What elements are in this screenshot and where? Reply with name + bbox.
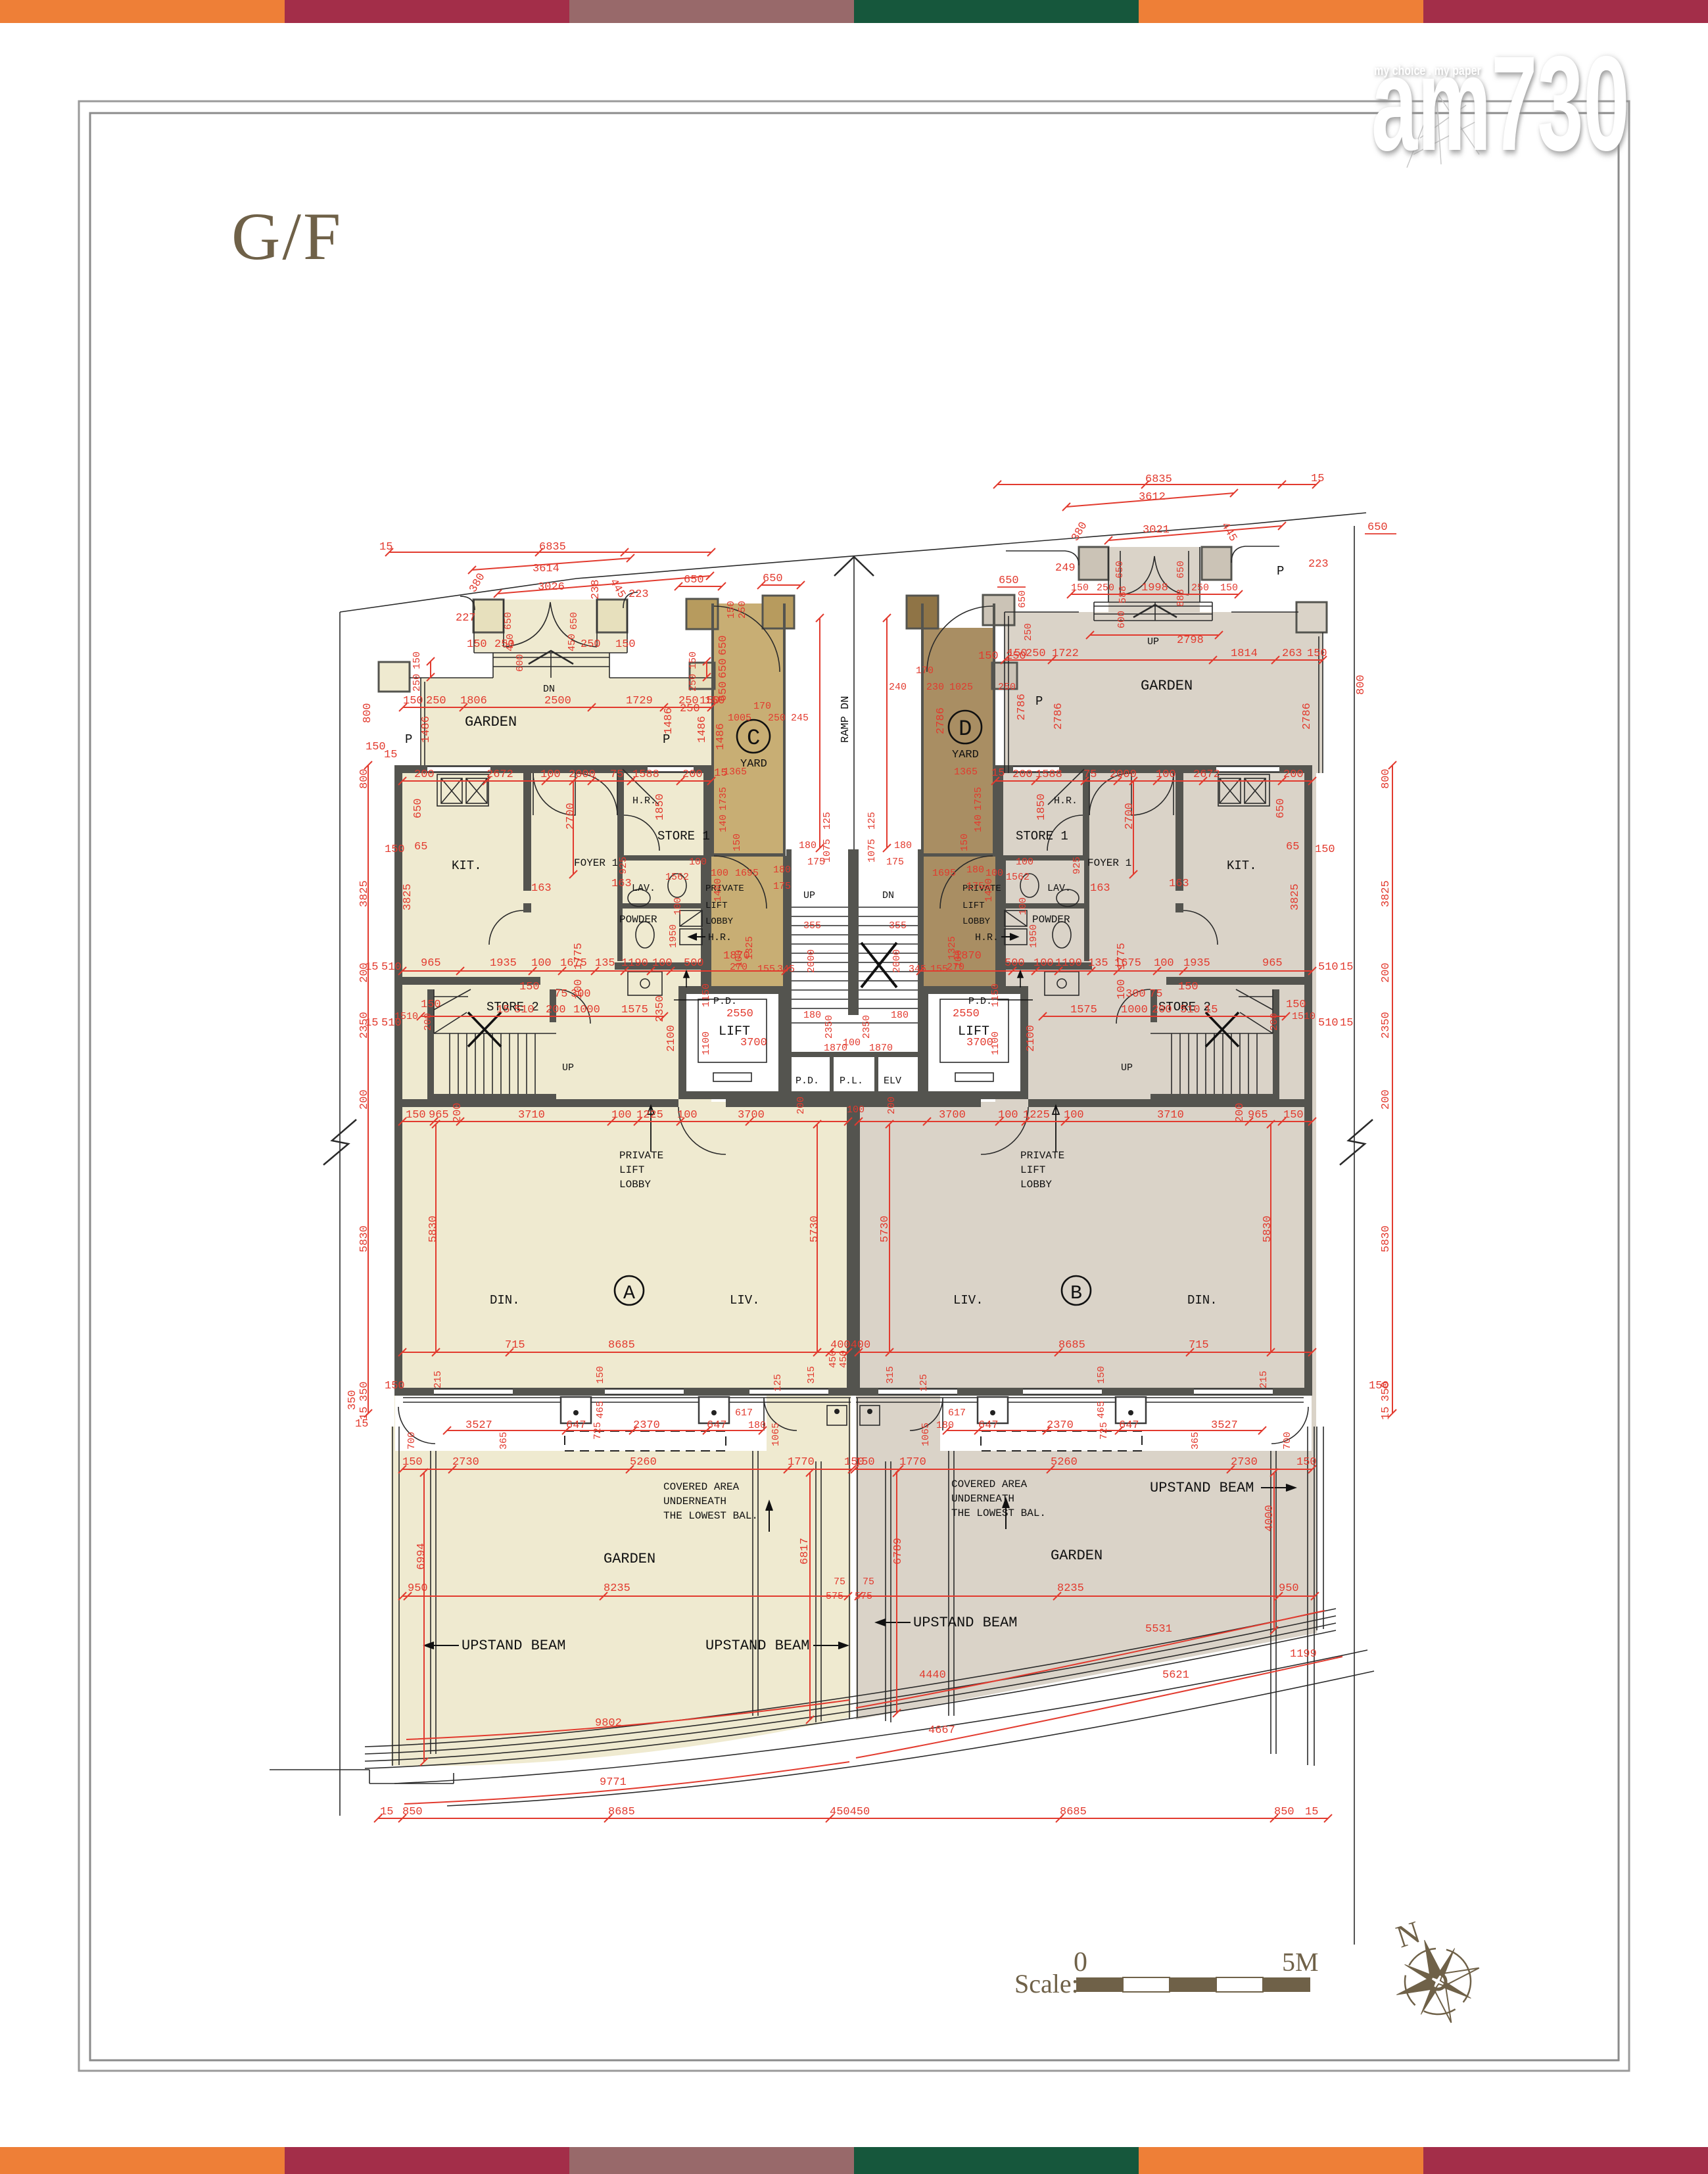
svg-text:800: 800: [1355, 674, 1367, 695]
svg-text:150: 150: [406, 1109, 426, 1122]
svg-text:LIFT: LIFT: [619, 1164, 644, 1176]
svg-text:UPSTAND BEAM: UPSTAND BEAM: [462, 1638, 565, 1654]
svg-text:1510: 1510: [394, 1011, 418, 1022]
svg-text:150: 150: [402, 1456, 423, 1469]
svg-text:715: 715: [505, 1339, 525, 1352]
svg-text:1065: 1065: [920, 1423, 932, 1446]
svg-text:100: 100: [689, 857, 707, 868]
svg-text:1400: 1400: [984, 878, 995, 902]
svg-text:155: 155: [930, 964, 948, 975]
svg-text:4440: 4440: [919, 1669, 946, 1682]
svg-text:450: 450: [838, 1350, 849, 1368]
svg-text:1365: 1365: [723, 767, 747, 778]
svg-text:150: 150: [519, 981, 540, 993]
svg-text:650: 650: [503, 612, 514, 630]
svg-text:1575: 1575: [1070, 1004, 1097, 1016]
svg-text:ELV: ELV: [884, 1075, 901, 1087]
svg-text:250: 250: [768, 713, 786, 724]
svg-text:200: 200: [358, 1089, 371, 1110]
svg-text:3700: 3700: [738, 1109, 765, 1122]
svg-text:15: 15: [384, 749, 397, 761]
svg-text:3825: 3825: [402, 884, 414, 910]
svg-text:1770: 1770: [899, 1456, 926, 1469]
svg-text:3527: 3527: [1211, 1419, 1238, 1432]
svg-text:200: 200: [682, 768, 703, 781]
svg-text:2350: 2350: [654, 995, 667, 1022]
svg-text:1850: 1850: [654, 793, 667, 820]
svg-text:5830: 5830: [358, 1225, 371, 1252]
svg-text:1588: 1588: [1035, 768, 1062, 781]
svg-text:P: P: [1277, 564, 1284, 579]
svg-text:200: 200: [1152, 1004, 1172, 1016]
svg-text:8685: 8685: [608, 1339, 635, 1352]
svg-text:965: 965: [429, 1109, 449, 1122]
svg-text:9771: 9771: [600, 1776, 627, 1789]
svg-text:510: 510: [1318, 961, 1339, 974]
svg-text:1000: 1000: [1121, 1004, 1148, 1016]
svg-text:650: 650: [684, 574, 704, 586]
svg-text:PRIVATE: PRIVATE: [705, 884, 744, 894]
svg-text:150: 150: [421, 999, 441, 1011]
svg-text:180: 180: [748, 1420, 766, 1431]
svg-text:100: 100: [1064, 1109, 1084, 1122]
svg-text:1225: 1225: [636, 1109, 663, 1122]
svg-text:am730: am730: [1371, 29, 1630, 179]
svg-text:250: 250: [426, 695, 446, 707]
svg-text:1486: 1486: [696, 716, 709, 743]
svg-text:600: 600: [515, 654, 526, 672]
svg-text:1325: 1325: [744, 936, 755, 960]
svg-text:6994: 6994: [415, 1543, 428, 1570]
svg-text:3825: 3825: [1380, 880, 1392, 907]
svg-text:355: 355: [889, 920, 907, 932]
svg-text:2100: 2100: [1025, 1025, 1037, 1052]
svg-text:2672: 2672: [1193, 768, 1220, 781]
svg-text:1025: 1025: [949, 682, 973, 693]
svg-text:1562: 1562: [1006, 872, 1030, 883]
svg-text:135: 135: [595, 957, 615, 970]
svg-text:150: 150: [403, 695, 423, 707]
svg-text:650: 650: [717, 635, 730, 655]
svg-text:650: 650: [999, 575, 1019, 587]
svg-text:650: 650: [1175, 561, 1187, 579]
svg-text:1729: 1729: [626, 695, 653, 707]
svg-text:100: 100: [611, 1109, 632, 1122]
svg-text:H.R.: H.R.: [1054, 795, 1078, 807]
svg-text:1562: 1562: [665, 872, 689, 883]
svg-text:180: 180: [936, 1420, 954, 1431]
svg-text:1588: 1588: [632, 768, 659, 781]
svg-text:150: 150: [412, 651, 423, 669]
svg-text:THE LOWEST BAL.: THE LOWEST BAL.: [663, 1510, 758, 1522]
svg-text:100: 100: [531, 957, 552, 970]
svg-text:650: 650: [412, 798, 425, 818]
svg-text:UP: UP: [1121, 1062, 1133, 1074]
svg-text:3825: 3825: [358, 880, 371, 907]
svg-text:1225: 1225: [1023, 1109, 1050, 1122]
svg-text:P.L.: P.L.: [840, 1075, 863, 1087]
svg-text:5260: 5260: [630, 1456, 657, 1469]
svg-text:100: 100: [734, 950, 745, 968]
svg-text:170: 170: [916, 665, 934, 676]
svg-text:DIN.: DIN.: [1187, 1293, 1218, 1308]
svg-text:1510: 1510: [1292, 1011, 1316, 1022]
svg-text:200: 200: [452, 1102, 464, 1123]
svg-text:1695: 1695: [735, 868, 759, 879]
svg-text:150: 150: [1071, 582, 1089, 594]
svg-text:350: 350: [358, 1381, 371, 1402]
svg-text:POWDER: POWDER: [1032, 914, 1070, 926]
svg-text:150: 150: [1286, 999, 1306, 1011]
svg-text:200: 200: [546, 1004, 566, 1016]
svg-text:200: 200: [795, 1097, 807, 1114]
svg-text:250: 250: [1006, 650, 1026, 663]
svg-text:2370: 2370: [1047, 1419, 1074, 1432]
svg-text:1400: 1400: [713, 878, 724, 902]
svg-text:1735: 1735: [973, 787, 984, 811]
svg-text:850: 850: [1274, 1806, 1294, 1818]
svg-text:DN: DN: [882, 890, 894, 901]
svg-text:UPSTAND BEAM: UPSTAND BEAM: [913, 1615, 1017, 1631]
svg-text:150: 150: [366, 741, 386, 753]
svg-text:163: 163: [1169, 878, 1189, 890]
svg-text:223: 223: [1308, 558, 1329, 571]
svg-text:LIV.: LIV.: [730, 1293, 760, 1308]
svg-text:3710: 3710: [1157, 1109, 1184, 1122]
svg-text:5830: 5830: [1262, 1216, 1274, 1242]
svg-text:UP: UP: [803, 890, 815, 901]
svg-text:140: 140: [718, 815, 729, 832]
svg-text:215: 215: [433, 1371, 444, 1388]
svg-text:1486: 1486: [715, 723, 727, 750]
svg-text:D: D: [959, 717, 972, 742]
svg-text:650: 650: [1367, 521, 1388, 534]
svg-text:1190: 1190: [621, 957, 648, 970]
svg-text:200: 200: [423, 1013, 434, 1031]
svg-text:1486: 1486: [420, 716, 433, 743]
svg-text:UPSTAND BEAM: UPSTAND BEAM: [705, 1638, 809, 1654]
svg-text:150: 150: [688, 651, 699, 669]
svg-text:150: 150: [1315, 843, 1335, 856]
svg-text:1000: 1000: [573, 1004, 600, 1016]
svg-text:965: 965: [1262, 957, 1283, 970]
svg-text:GARDEN: GARDEN: [604, 1551, 655, 1567]
svg-text:249: 249: [1055, 562, 1076, 575]
svg-text:3700: 3700: [966, 1037, 993, 1049]
svg-text:3614: 3614: [533, 563, 559, 575]
svg-text:2786: 2786: [1053, 703, 1065, 730]
svg-text:150: 150: [705, 695, 725, 707]
svg-text:POWDER: POWDER: [619, 914, 657, 926]
svg-text:125: 125: [822, 812, 833, 830]
svg-text:2786: 2786: [935, 707, 947, 734]
svg-text:1075: 1075: [822, 839, 833, 863]
svg-text:250: 250: [581, 638, 601, 651]
svg-text:75: 75: [1149, 988, 1162, 1001]
svg-text:850: 850: [402, 1806, 423, 1818]
svg-text:1998: 1998: [1141, 582, 1168, 594]
svg-text:163: 163: [1090, 882, 1110, 895]
svg-text:200: 200: [1269, 1013, 1280, 1031]
svg-text:2700: 2700: [565, 803, 577, 830]
svg-text:250: 250: [737, 601, 748, 619]
svg-text:5730: 5730: [809, 1216, 821, 1242]
svg-text:COVERED AREA: COVERED AREA: [663, 1481, 740, 1493]
svg-text:6835: 6835: [1145, 473, 1172, 486]
svg-text:2786: 2786: [1301, 703, 1314, 730]
svg-text:250: 250: [1026, 648, 1046, 660]
svg-text:100: 100: [985, 868, 1003, 879]
svg-text:150: 150: [959, 834, 970, 851]
svg-text:15: 15: [1204, 1004, 1218, 1016]
svg-text:150: 150: [1296, 1456, 1317, 1469]
svg-text:1950: 1950: [668, 924, 679, 948]
svg-text:4667: 4667: [928, 1724, 955, 1737]
svg-text:H.R.: H.R.: [975, 932, 999, 943]
svg-text:100: 100: [843, 1037, 861, 1049]
svg-text:75: 75: [863, 1576, 874, 1588]
svg-text:100: 100: [711, 868, 728, 879]
svg-text:8685: 8685: [1060, 1806, 1087, 1818]
svg-text:245: 245: [791, 713, 809, 724]
svg-text:KIT.: KIT.: [452, 859, 482, 873]
svg-text:2370: 2370: [633, 1419, 660, 1432]
svg-text:1005: 1005: [728, 713, 751, 724]
svg-text:75: 75: [610, 768, 623, 781]
svg-text:LIFT: LIFT: [962, 901, 985, 911]
svg-text:445: 445: [607, 577, 628, 601]
svg-text:1814: 1814: [1231, 648, 1258, 660]
svg-text:510: 510: [1180, 1004, 1200, 1016]
svg-text:P.D.: P.D.: [968, 996, 992, 1007]
svg-text:2000: 2000: [1110, 768, 1137, 781]
svg-text:1065: 1065: [771, 1423, 782, 1446]
svg-text:125: 125: [918, 1374, 930, 1392]
svg-text:75: 75: [1083, 768, 1097, 781]
svg-text:200: 200: [1380, 1089, 1392, 1110]
svg-text:700: 700: [1282, 1432, 1293, 1450]
svg-text:100: 100: [1016, 857, 1033, 868]
svg-text:250: 250: [412, 674, 423, 692]
svg-text:P: P: [405, 732, 412, 747]
svg-text:1675: 1675: [1114, 957, 1141, 970]
svg-text:0: 0: [1074, 1947, 1087, 1977]
svg-text:647: 647: [566, 1419, 586, 1432]
svg-text:1850: 1850: [1035, 793, 1048, 820]
svg-text:650: 650: [1017, 590, 1028, 608]
svg-text:Scale:: Scale:: [1014, 1969, 1079, 1998]
svg-text:315: 315: [885, 1366, 896, 1384]
svg-text:H.R.: H.R.: [708, 932, 732, 943]
svg-text:175: 175: [773, 881, 791, 892]
svg-text:200: 200: [414, 768, 435, 781]
svg-text:650: 650: [1114, 561, 1126, 579]
svg-text:1190: 1190: [1055, 957, 1082, 970]
svg-text:100: 100: [1033, 957, 1054, 970]
svg-text:180: 180: [966, 864, 984, 876]
svg-text:3026: 3026: [538, 581, 565, 594]
svg-text:5730: 5730: [879, 1216, 891, 1242]
svg-text:1575: 1575: [621, 1004, 648, 1016]
svg-text:2350: 2350: [1380, 1012, 1392, 1039]
svg-text:1935: 1935: [1183, 957, 1210, 970]
svg-text:230: 230: [926, 682, 944, 693]
svg-text:647: 647: [978, 1419, 999, 1432]
svg-text:5531: 5531: [1145, 1623, 1172, 1636]
svg-text:100: 100: [652, 957, 673, 970]
svg-text:150: 150: [1096, 1366, 1107, 1384]
svg-text:965: 965: [1248, 1109, 1268, 1122]
svg-text:150: 150: [1178, 981, 1198, 993]
svg-text:6817: 6817: [799, 1538, 811, 1565]
svg-text:250: 250: [998, 682, 1016, 693]
svg-text:510: 510: [381, 961, 402, 974]
svg-text:150: 150: [385, 1380, 405, 1392]
svg-text:1735: 1735: [718, 787, 729, 811]
svg-text:450450: 450450: [830, 1806, 870, 1818]
svg-text:5830: 5830: [427, 1216, 440, 1242]
svg-text:PRIVATE: PRIVATE: [1020, 1150, 1064, 1162]
svg-text:1935: 1935: [490, 957, 517, 970]
svg-text:2798: 2798: [1177, 634, 1204, 647]
svg-text:100: 100: [998, 1109, 1018, 1122]
svg-text:150: 150: [467, 638, 487, 651]
svg-text:617: 617: [948, 1407, 966, 1419]
svg-text:100: 100: [677, 1109, 698, 1122]
svg-text:163: 163: [611, 878, 632, 890]
svg-text:1325: 1325: [947, 936, 958, 960]
svg-text:250: 250: [1097, 582, 1114, 594]
svg-text:250: 250: [688, 674, 699, 692]
svg-text:100: 100: [540, 768, 561, 781]
svg-text:450: 450: [505, 634, 516, 651]
svg-text:1806: 1806: [460, 695, 487, 707]
svg-text:300: 300: [1126, 988, 1146, 1001]
svg-text:175: 175: [886, 857, 904, 868]
svg-text:180: 180: [773, 864, 791, 876]
svg-text:15: 15: [365, 1017, 378, 1029]
svg-text:200: 200: [1012, 768, 1033, 781]
svg-text:2000: 2000: [806, 949, 817, 973]
svg-text:223: 223: [629, 588, 649, 601]
svg-text:465: 465: [1096, 1401, 1107, 1419]
svg-text:227: 227: [456, 612, 476, 625]
svg-text:5621: 5621: [1162, 1669, 1189, 1682]
svg-text:5M: 5M: [1282, 1947, 1319, 1977]
svg-text:15: 15: [1380, 1407, 1392, 1420]
svg-text:UP: UP: [1147, 636, 1159, 648]
svg-text:LOBBY: LOBBY: [962, 916, 991, 927]
svg-text:DIN.: DIN.: [490, 1293, 520, 1308]
svg-text:150: 150: [615, 638, 636, 651]
svg-text:UPSTAND BEAM: UPSTAND BEAM: [1150, 1480, 1254, 1496]
svg-text:2730: 2730: [1231, 1456, 1258, 1469]
svg-text:175: 175: [966, 881, 984, 892]
svg-text:600: 600: [1116, 611, 1127, 628]
svg-text:150: 150: [1283, 1109, 1304, 1122]
svg-text:725: 725: [1099, 1422, 1110, 1440]
svg-text:200: 200: [1234, 1102, 1246, 1123]
svg-text:250: 250: [680, 703, 700, 715]
svg-text:700: 700: [406, 1432, 417, 1450]
svg-text:75: 75: [834, 1576, 845, 1588]
svg-text:163: 163: [531, 882, 552, 895]
svg-text:800: 800: [1380, 768, 1392, 789]
svg-text:8685: 8685: [608, 1806, 635, 1818]
svg-text:15: 15: [380, 1806, 393, 1818]
svg-text:4000: 4000: [1264, 1505, 1276, 1532]
svg-text:150: 150: [385, 843, 405, 856]
svg-text:925: 925: [1072, 857, 1083, 874]
svg-text:15: 15: [355, 1418, 368, 1430]
svg-text:250: 250: [1023, 623, 1034, 641]
svg-text:380: 380: [1070, 520, 1091, 544]
svg-text:3825: 3825: [1289, 884, 1302, 910]
svg-text:510: 510: [1318, 1017, 1339, 1029]
svg-text:617: 617: [735, 1407, 753, 1419]
svg-text:140: 140: [973, 815, 984, 832]
svg-text:345: 345: [909, 964, 926, 975]
svg-text:15: 15: [496, 1004, 510, 1016]
svg-text:LOBBY: LOBBY: [1020, 1179, 1052, 1191]
svg-text:200: 200: [1380, 962, 1392, 983]
svg-text:510: 510: [514, 1004, 534, 1016]
svg-text:H.R.: H.R.: [632, 795, 656, 807]
svg-text:100: 100: [1154, 957, 1174, 970]
svg-text:300: 300: [571, 988, 591, 1001]
svg-text:UNDERNEATH: UNDERNEATH: [663, 1496, 726, 1507]
svg-text:P.D.: P.D.: [713, 996, 737, 1007]
svg-text:2700: 2700: [1124, 803, 1136, 830]
svg-text:THE LOWEST BAL.: THE LOWEST BAL.: [951, 1507, 1046, 1519]
svg-text:15: 15: [1305, 1806, 1318, 1818]
svg-text:888: 888: [1175, 589, 1187, 607]
svg-text:6835: 6835: [539, 541, 566, 554]
svg-text:170: 170: [753, 701, 771, 712]
svg-text:715: 715: [1189, 1339, 1209, 1352]
svg-text:180: 180: [799, 840, 817, 851]
svg-text:800: 800: [358, 768, 371, 789]
svg-text:LIFT: LIFT: [1020, 1164, 1045, 1176]
svg-text:100: 100: [1156, 768, 1176, 781]
svg-text:650: 650: [717, 658, 730, 678]
svg-text:465: 465: [595, 1401, 606, 1419]
svg-text:LAV.: LAV.: [632, 883, 655, 894]
svg-text:1150: 1150: [990, 983, 1001, 1007]
svg-text:3710: 3710: [518, 1109, 545, 1122]
svg-text:15: 15: [991, 767, 1005, 780]
svg-text:100: 100: [673, 897, 684, 915]
svg-text:1695: 1695: [932, 868, 956, 879]
svg-text:GARDEN: GARDEN: [465, 714, 517, 730]
svg-text:2350: 2350: [824, 1015, 835, 1039]
svg-text:100: 100: [1018, 897, 1029, 915]
svg-text:6789: 6789: [892, 1538, 905, 1565]
svg-text:445: 445: [1218, 521, 1239, 544]
svg-text:UP: UP: [562, 1062, 574, 1074]
svg-text:355: 355: [803, 920, 821, 932]
svg-text:RAMP DN: RAMP DN: [840, 696, 852, 743]
svg-text:3021: 3021: [1143, 524, 1170, 536]
svg-text:LIV.: LIV.: [953, 1293, 984, 1308]
svg-text:15: 15: [365, 961, 378, 974]
svg-text:2786: 2786: [1016, 694, 1028, 721]
svg-text:8235: 8235: [604, 1582, 630, 1595]
svg-text:155: 155: [757, 964, 775, 975]
svg-text:400400: 400400: [830, 1339, 870, 1352]
svg-text:G/F: G/F: [231, 199, 343, 274]
svg-text:STORE 1: STORE 1: [657, 829, 710, 843]
